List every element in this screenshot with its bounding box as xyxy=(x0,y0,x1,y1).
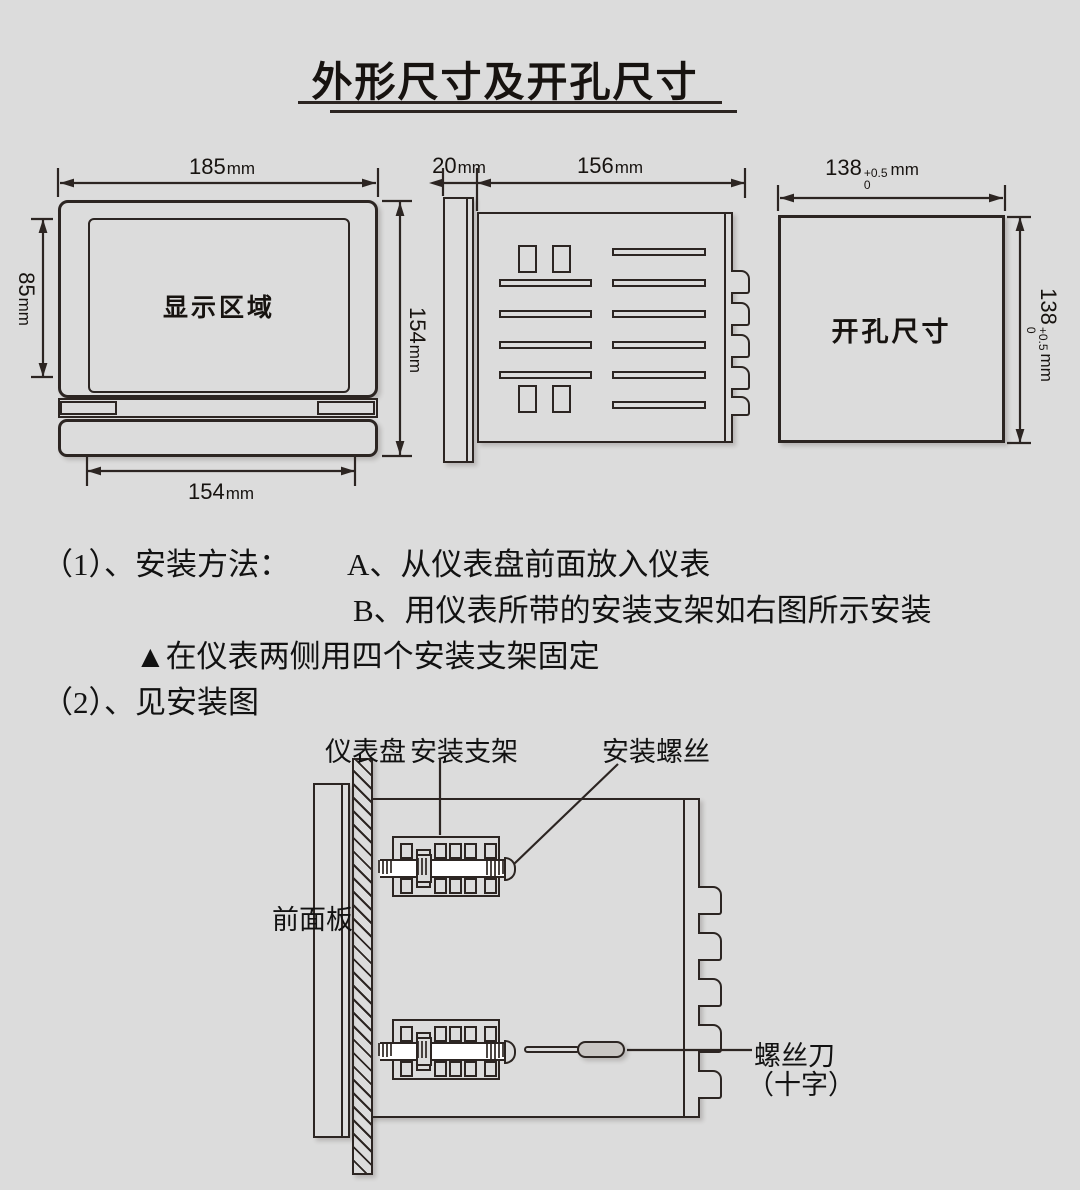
bracket-hole xyxy=(400,878,413,894)
terminal-bump xyxy=(698,1070,722,1099)
page-title: 外形尺寸及开孔尺寸 xyxy=(290,48,720,108)
bracket-hole xyxy=(464,1061,477,1077)
bracket-hole xyxy=(400,1061,413,1077)
mounting-bracket-bottom xyxy=(392,1019,500,1080)
dim-display-height-85: 85mm xyxy=(13,272,39,326)
panel-label: 仪表盘 xyxy=(325,730,406,769)
vent-slot xyxy=(612,248,706,256)
terminal-bump xyxy=(698,886,722,915)
front-clip-left xyxy=(60,401,117,415)
cutout-square: 开孔尺寸 xyxy=(778,215,1005,443)
front-clip-right xyxy=(317,401,375,415)
side-bezel-inner-line xyxy=(466,199,468,461)
instrument-body-rear-line xyxy=(683,800,685,1116)
hatched-panel xyxy=(352,758,373,1175)
terminal-bump xyxy=(698,1024,722,1053)
screw-clamp xyxy=(416,1037,432,1066)
dim-width-185: 185mm xyxy=(189,154,255,180)
bracket-hole xyxy=(484,1061,497,1077)
display-area: 显示区域 xyxy=(88,218,350,393)
vent-slot xyxy=(612,279,706,287)
instruction-item-2: （2）、见安装图 xyxy=(42,684,259,722)
bracket-hole xyxy=(400,843,413,859)
front-bottom-bar xyxy=(58,419,378,457)
bracket-hole xyxy=(449,1026,462,1042)
title-underline-1 xyxy=(298,101,722,104)
vent-slot xyxy=(612,401,706,409)
bracket-hole xyxy=(434,1026,447,1042)
screw-channel xyxy=(380,859,505,878)
dim-cutout-height-138: 138+0.50mm xyxy=(1027,288,1061,382)
dim-bottom-154: 154mm xyxy=(188,479,254,505)
screwdriver-handle xyxy=(577,1041,625,1058)
terminal-bump xyxy=(731,302,750,326)
bracket-hole xyxy=(484,1026,497,1042)
vent-slot xyxy=(612,371,706,379)
bracket-hole xyxy=(449,1061,462,1077)
display-area-label: 显示区域 xyxy=(163,288,275,324)
bracket-hole xyxy=(484,843,497,859)
screw-channel xyxy=(380,1042,505,1061)
instruction-note: ▲在仪表两侧用四个安装支架固定 xyxy=(135,638,600,676)
terminal-bump xyxy=(731,334,750,358)
vent-slot xyxy=(612,310,706,318)
vent-square xyxy=(518,245,537,273)
cutout-label: 开孔尺寸 xyxy=(832,310,952,349)
screwdriver-shaft xyxy=(524,1046,580,1053)
title-underline-2 xyxy=(330,110,737,113)
bracket-hole xyxy=(484,878,497,894)
bracket-hole xyxy=(464,878,477,894)
dim-body-depth-156: 156mm xyxy=(577,153,643,179)
vent-square xyxy=(518,385,537,413)
screwdriver-label-2: （十字） xyxy=(747,1063,855,1102)
bracket-hole xyxy=(434,1061,447,1077)
bracket-hole xyxy=(434,878,447,894)
screw-clamp xyxy=(416,854,432,883)
vent-slot xyxy=(499,341,592,349)
vent-square xyxy=(552,385,571,413)
bracket-hole xyxy=(449,843,462,859)
vent-slot xyxy=(499,279,592,287)
instruction-step-b: B、用仪表所带的安装支架如右图所示安装 xyxy=(353,592,932,630)
bracket-hole xyxy=(434,843,447,859)
bracket-hole xyxy=(464,843,477,859)
terminal-bump xyxy=(731,396,750,416)
vent-slot xyxy=(499,310,592,318)
front-panel xyxy=(313,783,350,1138)
manual-page: 外形尺寸及开孔尺寸 显示区域 185mm 154mm 85mm 154mm xyxy=(0,0,1080,1190)
terminal-bump xyxy=(698,932,722,961)
terminal-bump xyxy=(731,366,750,390)
side-front-bezel xyxy=(443,197,474,463)
bracket-label: 安装支架 xyxy=(410,730,518,769)
bracket-hole xyxy=(449,878,462,894)
front-panel-label: 前面板 xyxy=(272,903,304,937)
bracket-hole xyxy=(464,1026,477,1042)
instruction-step-a: A、从仪表盘前面放入仪表 xyxy=(347,546,710,584)
dim-cutout-width-138: 138+0.50mm xyxy=(825,155,919,189)
dim-height-154: 154mm xyxy=(404,307,430,373)
mounting-bracket-top xyxy=(392,836,500,897)
vent-slot xyxy=(612,341,706,349)
vent-slot xyxy=(499,371,592,379)
dim-front-depth-20: 20mm xyxy=(432,153,486,179)
screw-label: 安装螺丝 xyxy=(602,730,710,769)
terminal-bump xyxy=(698,978,722,1007)
instruction-item-1: （1）、安装方法： xyxy=(42,546,290,584)
bracket-hole xyxy=(400,1026,413,1042)
terminal-bump xyxy=(731,270,750,294)
vent-square xyxy=(552,245,571,273)
side-rear-inner-line xyxy=(724,214,726,441)
front-panel-inner-line xyxy=(341,785,343,1136)
